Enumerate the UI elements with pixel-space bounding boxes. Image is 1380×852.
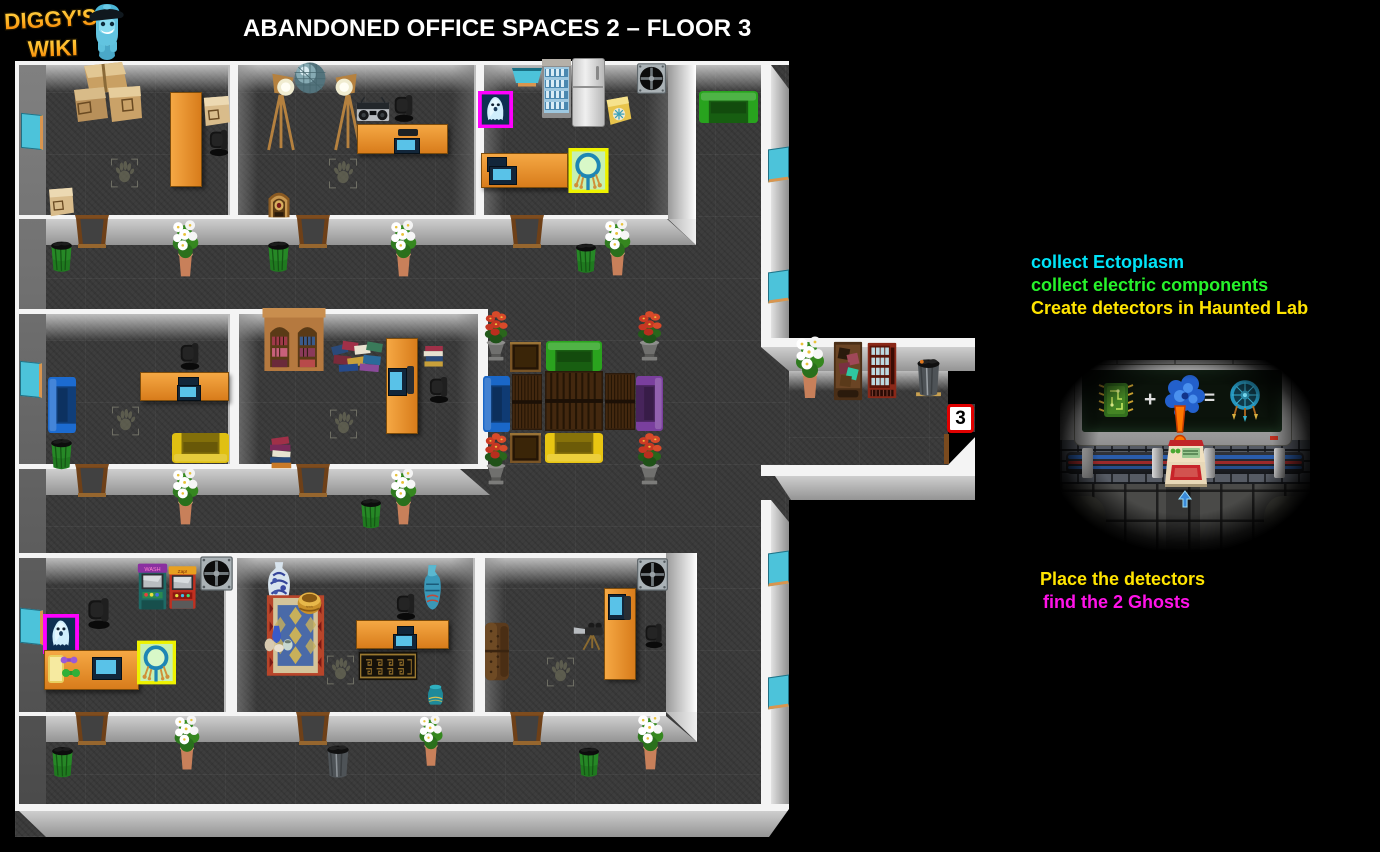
svg-text:≈≈≈: ≈≈≈	[306, 604, 314, 609]
svg-text:DIGGY'S: DIGGY'S	[4, 5, 98, 35]
svg-text:WIKI: WIKI	[27, 35, 78, 62]
svg-text:Zap!: Zap!	[178, 569, 188, 575]
svg-text:WASH: WASH	[144, 567, 160, 573]
